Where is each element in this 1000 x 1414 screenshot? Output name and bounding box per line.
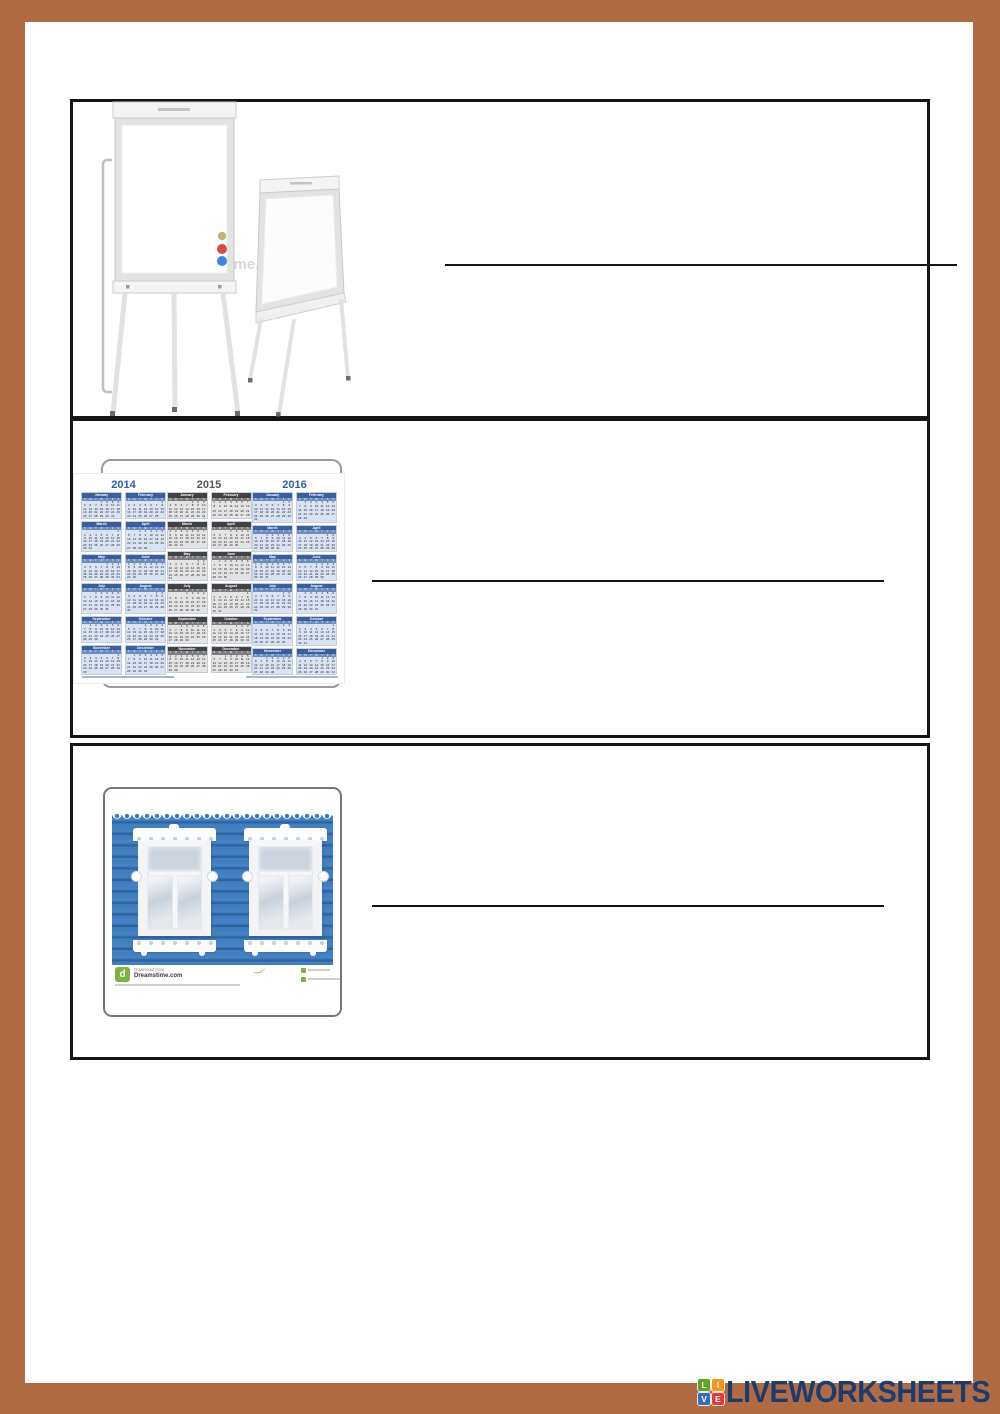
window-skirt: [244, 940, 327, 952]
mini-month-november: NovemberSMTWTFS1234567891011121314151617…: [167, 646, 208, 673]
windows-photo-frame: d Download from Dreamstime.com: [103, 787, 342, 1017]
logo-tile-v: V: [698, 1393, 710, 1405]
calendar-year-title: 2016: [252, 478, 337, 492]
logo-tile-e: E: [712, 1393, 724, 1405]
mini-month-september: SeptemberSMTWTFS123456789101112131415161…: [252, 616, 293, 647]
mini-month-june: JuneSMTWTFS12345678910111213141516171819…: [211, 551, 252, 582]
calendar-year-title: 2015: [167, 478, 252, 492]
magnet-tan: [218, 232, 226, 240]
mini-month-july: JulySMTWTFS12345678910111213141516171819…: [167, 583, 208, 614]
window-skirt: [133, 940, 216, 952]
mini-month-october: OctoberSMTWTFS12345678910111213141516171…: [211, 616, 252, 643]
rosette-right: [208, 872, 217, 881]
worksheet-page: dreamstime.: [0, 0, 1000, 1414]
answer-line-3[interactable]: [372, 871, 884, 907]
mini-month-june: JuneSMTWTFS12345678910111213141516171819…: [125, 554, 166, 581]
mini-month-november: NovemberSMTWTFS1234567891011121314151617…: [81, 645, 122, 676]
calendar-footer-text-right: [246, 676, 338, 678]
question-box-1: dreamstime.: [70, 99, 930, 419]
logo-tile-i: I: [712, 1379, 724, 1391]
mini-month-november: NovemberSMTWTFS1234567891011121314151617…: [252, 648, 293, 675]
window-right: [242, 828, 329, 954]
mini-month-july: JulySMTWTFS12345678910111213141516171819…: [252, 583, 293, 614]
mini-month-january: JanuarySMTWTFS12345678910111213141516171…: [167, 492, 208, 519]
calendar-sheet: 2014JanuarySMTWTFS1234567891011121314151…: [73, 473, 345, 684]
answer-line-1[interactable]: [445, 230, 957, 266]
mini-month-january: JanuarySMTWTFS12345678910111213141516171…: [81, 492, 122, 519]
mini-month-october: OctoberSMTWTFS12345678910111213141516171…: [296, 616, 337, 647]
mini-month-august: AugustSMTWTFS123456789101112131415161718…: [296, 583, 337, 614]
window-body: [138, 840, 211, 936]
photo-footer: d Download from Dreamstime.com: [105, 965, 340, 1017]
window-body: [249, 840, 322, 936]
mini-month-july: JulySMTWTFS12345678910111213141516171819…: [81, 583, 122, 614]
window-pane: [258, 875, 284, 930]
mini-month-february: FebruarySMTWTFS1234567891011121314151617…: [211, 492, 252, 519]
flipchart-illustration: dreamstime.: [98, 101, 358, 419]
calendar-year-title: 2014: [81, 478, 166, 492]
rosette-left: [243, 872, 252, 881]
mini-month-february: FebruarySMTWTFS1234567891011121314151617…: [296, 492, 337, 523]
frame-left: [0, 0, 25, 1414]
rosette-left: [132, 872, 141, 881]
mini-month-august: AugustSMTWTFS123456789101112131415161718…: [125, 583, 166, 614]
calendar-year-2016: 2016JanuarySMTWTFS1234567891011121314151…: [252, 478, 337, 673]
signature-mark-icon: [252, 964, 265, 974]
blue-wall-photo: [112, 812, 333, 965]
royalty-free-text: [308, 978, 340, 980]
mini-month-march: MarchSMTWTFS1234567891011121314151617181…: [81, 521, 122, 552]
mini-month-september: SeptemberSMTWTFS123456789101112131415161…: [167, 616, 208, 643]
frame-top: [0, 0, 1000, 22]
mini-month-may: MaySMTWTFS123456789101112131415161718192…: [252, 554, 293, 581]
rosette-right: [319, 872, 328, 881]
mini-month-january: JanuarySMTWTFS12345678910111213141516171…: [252, 492, 293, 523]
frame-right: [973, 0, 1000, 1414]
lace-trim: [112, 812, 333, 822]
mini-month-march: MarchSMTWTFS1234567891011121314151617181…: [252, 525, 293, 552]
image-id-text: [308, 969, 330, 971]
window-pane: [177, 875, 203, 930]
liveworksheets-wordmark: LIVEWORKSHEETS: [726, 1374, 990, 1410]
mini-month-april: AprilSMTWTFS1234567891011121314151617181…: [125, 521, 166, 552]
calendar-footer-text-left: [82, 676, 174, 678]
download-from-label: Download from: [134, 967, 164, 972]
mini-month-may: MaySMTWTFS123456789101112131415161718192…: [81, 554, 122, 581]
window-transom-pane: [147, 846, 202, 872]
liveworksheets-logo-icon: LIVE: [698, 1379, 724, 1405]
logo-tile-l: L: [698, 1379, 710, 1391]
answer-line-2[interactable]: [372, 546, 884, 582]
window-transom-pane: [258, 846, 313, 872]
mini-month-march: MarchSMTWTFS1234567891011121314151617181…: [167, 521, 208, 548]
mini-month-december: DecemberSMTWTFS1234567891011121314151617…: [296, 648, 337, 675]
magnet-blue: [217, 256, 227, 266]
flipchart-side-bracket: [103, 160, 112, 392]
mini-month-december: DecemberSMTWTFS1234567891011121314151617…: [211, 646, 252, 673]
mini-month-october: OctoberSMTWTFS12345678910111213141516171…: [125, 616, 166, 643]
royalty-free-icon: [301, 977, 306, 982]
mini-month-april: AprilSMTWTFS1234567891011121314151617181…: [296, 525, 337, 552]
window-pane: [147, 875, 173, 930]
mini-month-february: FebruarySMTWTFS1234567891011121314151617…: [125, 492, 166, 519]
magnet-red: [217, 244, 227, 254]
mini-month-june: JuneSMTWTFS12345678910111213141516171819…: [296, 554, 337, 581]
dreamstime-logo-icon: d: [115, 967, 130, 982]
dreamstime-site-label: Dreamstime.com: [134, 973, 182, 980]
calendar-year-2015: 2015JanuarySMTWTFS1234567891011121314151…: [167, 478, 252, 673]
photo-credit-text: [115, 984, 240, 986]
window-left: [131, 828, 218, 954]
mini-month-december: DecemberSMTWTFS1234567891011121314151617…: [125, 645, 166, 676]
image-id-icon: [301, 968, 306, 973]
mini-month-may: MaySMTWTFS123456789101112131415161718192…: [167, 551, 208, 582]
mini-month-september: SeptemberSMTWTFS123456789101112131415161…: [81, 616, 122, 643]
calendar-year-2014: 2014JanuarySMTWTFS1234567891011121314151…: [81, 478, 166, 673]
mini-month-april: AprilSMTWTFS1234567891011121314151617181…: [211, 521, 252, 548]
mini-month-august: AugustSMTWTFS123456789101112131415161718…: [211, 583, 252, 614]
window-pane: [288, 875, 314, 930]
